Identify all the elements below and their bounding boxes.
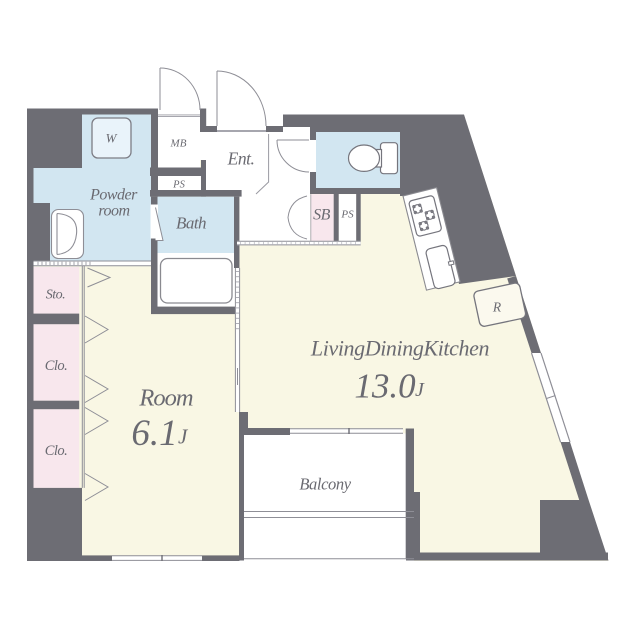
svg-text:SB: SB xyxy=(313,207,331,224)
svg-text:W: W xyxy=(106,131,118,146)
svg-text:Bath: Bath xyxy=(176,214,206,233)
svg-text:Clo.: Clo. xyxy=(45,443,68,459)
svg-text:Powder: Powder xyxy=(89,187,138,204)
svg-text:MB: MB xyxy=(170,138,187,150)
svg-text:Balcony: Balcony xyxy=(299,475,351,494)
svg-text:R: R xyxy=(492,300,502,315)
svg-text:Ent.: Ent. xyxy=(227,149,255,169)
svg-text:PS: PS xyxy=(172,180,185,191)
svg-text:Room: Room xyxy=(138,385,192,412)
svg-text:LivingDiningKitchen: LivingDiningKitchen xyxy=(310,336,490,361)
svg-text:Sto.: Sto. xyxy=(46,288,65,303)
svg-text:PS: PS xyxy=(340,209,354,221)
svg-text:6.1: 6.1 xyxy=(131,413,177,454)
svg-text:13.0: 13.0 xyxy=(354,367,416,406)
svg-text:room: room xyxy=(98,203,129,220)
svg-text:J: J xyxy=(415,379,425,401)
svg-text:Clo.: Clo. xyxy=(45,358,68,374)
